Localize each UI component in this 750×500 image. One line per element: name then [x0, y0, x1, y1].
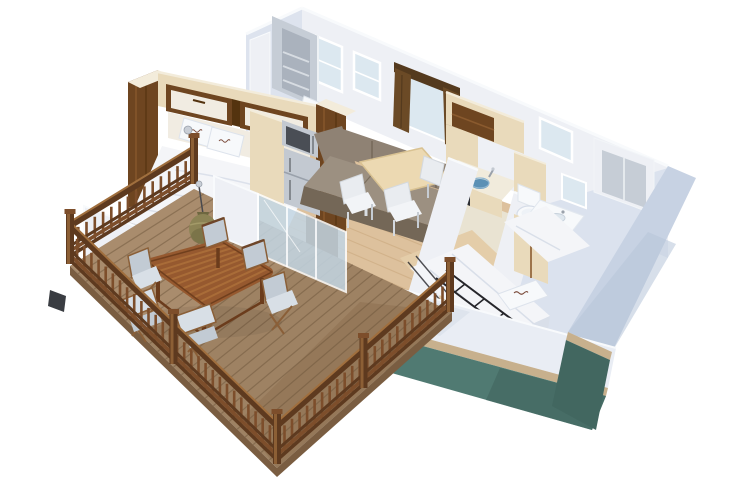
overhead-niche: [232, 99, 240, 127]
tall-cabinet: [250, 110, 284, 204]
floorplan-render: [0, 0, 750, 500]
gas-box: [48, 290, 66, 312]
back-window-1: [316, 36, 342, 92]
lamp-mount: [196, 181, 202, 187]
